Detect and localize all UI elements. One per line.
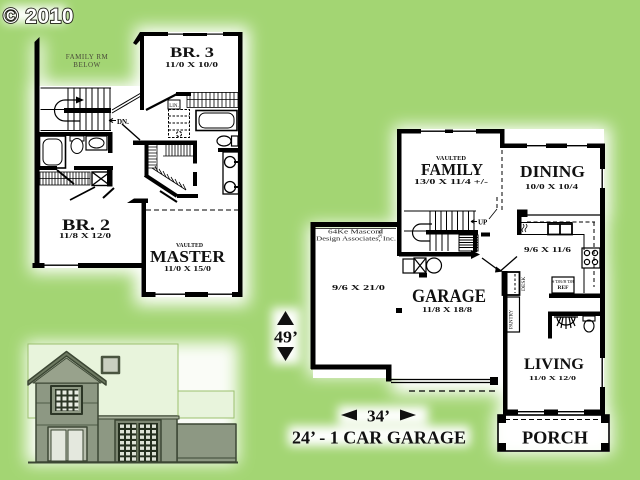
svg-text:49’: 49’ xyxy=(274,328,298,347)
svg-text:PORCH: PORCH xyxy=(522,428,588,448)
svg-text:11/8 X 12/0: 11/8 X 12/0 xyxy=(59,232,112,240)
svg-text:MASTER: MASTER xyxy=(150,247,226,266)
svg-text:BELOW: BELOW xyxy=(73,61,100,69)
svg-text:FAMILY RM: FAMILY RM xyxy=(66,53,109,61)
svg-text:UP: UP xyxy=(478,219,488,227)
svg-text:GARAGE: GARAGE xyxy=(412,286,486,307)
svg-text:11/8 X 18/8: 11/8 X 18/8 xyxy=(422,306,473,314)
svg-text:DINING: DINING xyxy=(520,162,585,181)
svg-text:11/0 X 10/0: 11/0 X 10/0 xyxy=(165,61,219,69)
svg-text:13/0 X 11/4 +/-: 13/0 X 11/4 +/- xyxy=(414,178,489,186)
svg-text:9/6 X 11/6: 9/6 X 11/6 xyxy=(524,246,572,254)
svg-text:LIVING: LIVING xyxy=(524,356,585,373)
svg-text:© 2010: © 2010 xyxy=(3,5,74,28)
svg-text:DESK: DESK xyxy=(521,277,527,291)
svg-text:34’: 34’ xyxy=(367,407,390,426)
svg-text:S’DR/B’DR: S’DR/B’DR xyxy=(552,279,574,284)
svg-text:PANTRY: PANTRY xyxy=(510,309,515,329)
svg-text:REF: REF xyxy=(558,285,570,291)
svg-text:11/0 X 15/0: 11/0 X 15/0 xyxy=(164,265,212,273)
svg-text:9/6 X 21/0: 9/6 X 21/0 xyxy=(332,284,386,292)
svg-text:11/0 X 12/0: 11/0 X 12/0 xyxy=(529,375,576,382)
svg-text:FAMILY: FAMILY xyxy=(421,160,483,179)
svg-text:10/0 X 10/4: 10/0 X 10/4 xyxy=(525,183,579,191)
svg-text:64Ke Mascord: 64Ke Mascord xyxy=(328,230,383,236)
svg-text:Design Associates, Inc.: Design Associates, Inc. xyxy=(316,237,397,243)
svg-text:BR. 3: BR. 3 xyxy=(170,45,214,61)
svg-text:LIN.: LIN. xyxy=(169,104,179,109)
svg-text:24’ - 1 CAR GARAGE: 24’ - 1 CAR GARAGE xyxy=(292,428,466,448)
